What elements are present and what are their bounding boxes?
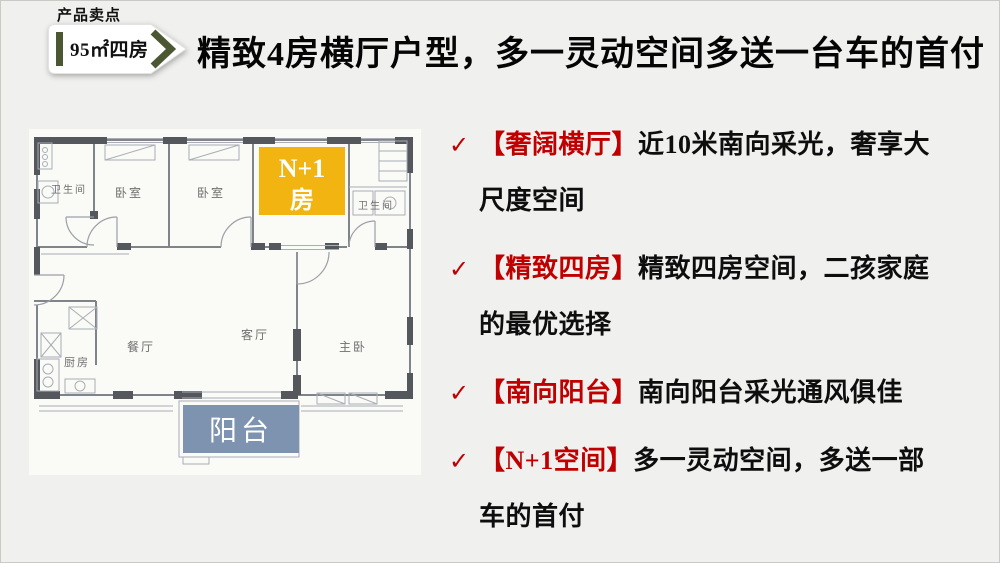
selling-point-tag: 【南向阳台】	[479, 378, 638, 407]
slide: 产品卖点 95㎡四房 精致4房横厅户型，多一灵动空间多送一台车的首付	[0, 0, 1000, 563]
n1-room-label-line2: 房	[290, 186, 314, 214]
room-label-bedroom1: 卧室	[115, 185, 143, 200]
room-label-bath-left: 卫生间	[51, 183, 87, 196]
selling-point-desc: 南向阳台采光通风俱佳	[638, 378, 903, 407]
room-label-bath-right: 卫生间	[358, 199, 394, 212]
area-badge: 95㎡四房	[46, 23, 194, 75]
room-label-dining: 餐厅	[127, 339, 155, 354]
check-icon: ✓	[449, 117, 470, 173]
room-label-bedroom2: 卧室	[197, 185, 225, 200]
check-icon: ✓	[449, 241, 470, 297]
selling-points-list: ✓ 【奢阔横厅】近10米南向采光，奢享大尺度空间 ✓ 【精致四房】精致四房空间，…	[449, 117, 949, 557]
n1-room-label-line1: N+1	[279, 154, 326, 183]
badge-label: 95㎡四房	[70, 38, 149, 61]
selling-point-1: ✓ 【奢阔横厅】近10米南向采光，奢享大尺度空间	[449, 117, 949, 229]
selling-point-tag: 【精致四房】	[479, 254, 638, 283]
balcony-label: 阳台	[209, 415, 273, 447]
eyebrow-label: 产品卖点	[57, 4, 121, 25]
room-label-living: 客厅	[241, 327, 269, 342]
page-title: 精致4房横厅户型，多一灵动空间多送一台车的首付	[197, 26, 987, 75]
selling-point-3: ✓ 【南向阳台】南向阳台采光通风俱佳	[449, 365, 949, 421]
room-label-master: 主卧	[339, 340, 367, 354]
selling-point-tag: 【N+1空间】	[479, 446, 633, 475]
floor-plan: N+1 房 阳台 卫生间 卧室 卧室 卫生间 厨房 餐厅 客厅 主卧	[29, 129, 421, 475]
selling-point-4: ✓ 【N+1空间】多一灵动空间，多送一部车的首付	[449, 433, 949, 545]
selling-point-2: ✓ 【精致四房】精致四房空间，二孩家庭的最优选择	[449, 241, 949, 353]
check-icon: ✓	[449, 433, 470, 489]
selling-point-tag: 【奢阔横厅】	[479, 130, 638, 159]
badge-accent-bar	[56, 32, 63, 66]
check-icon: ✓	[449, 365, 470, 421]
room-label-kitchen: 厨房	[64, 356, 90, 369]
